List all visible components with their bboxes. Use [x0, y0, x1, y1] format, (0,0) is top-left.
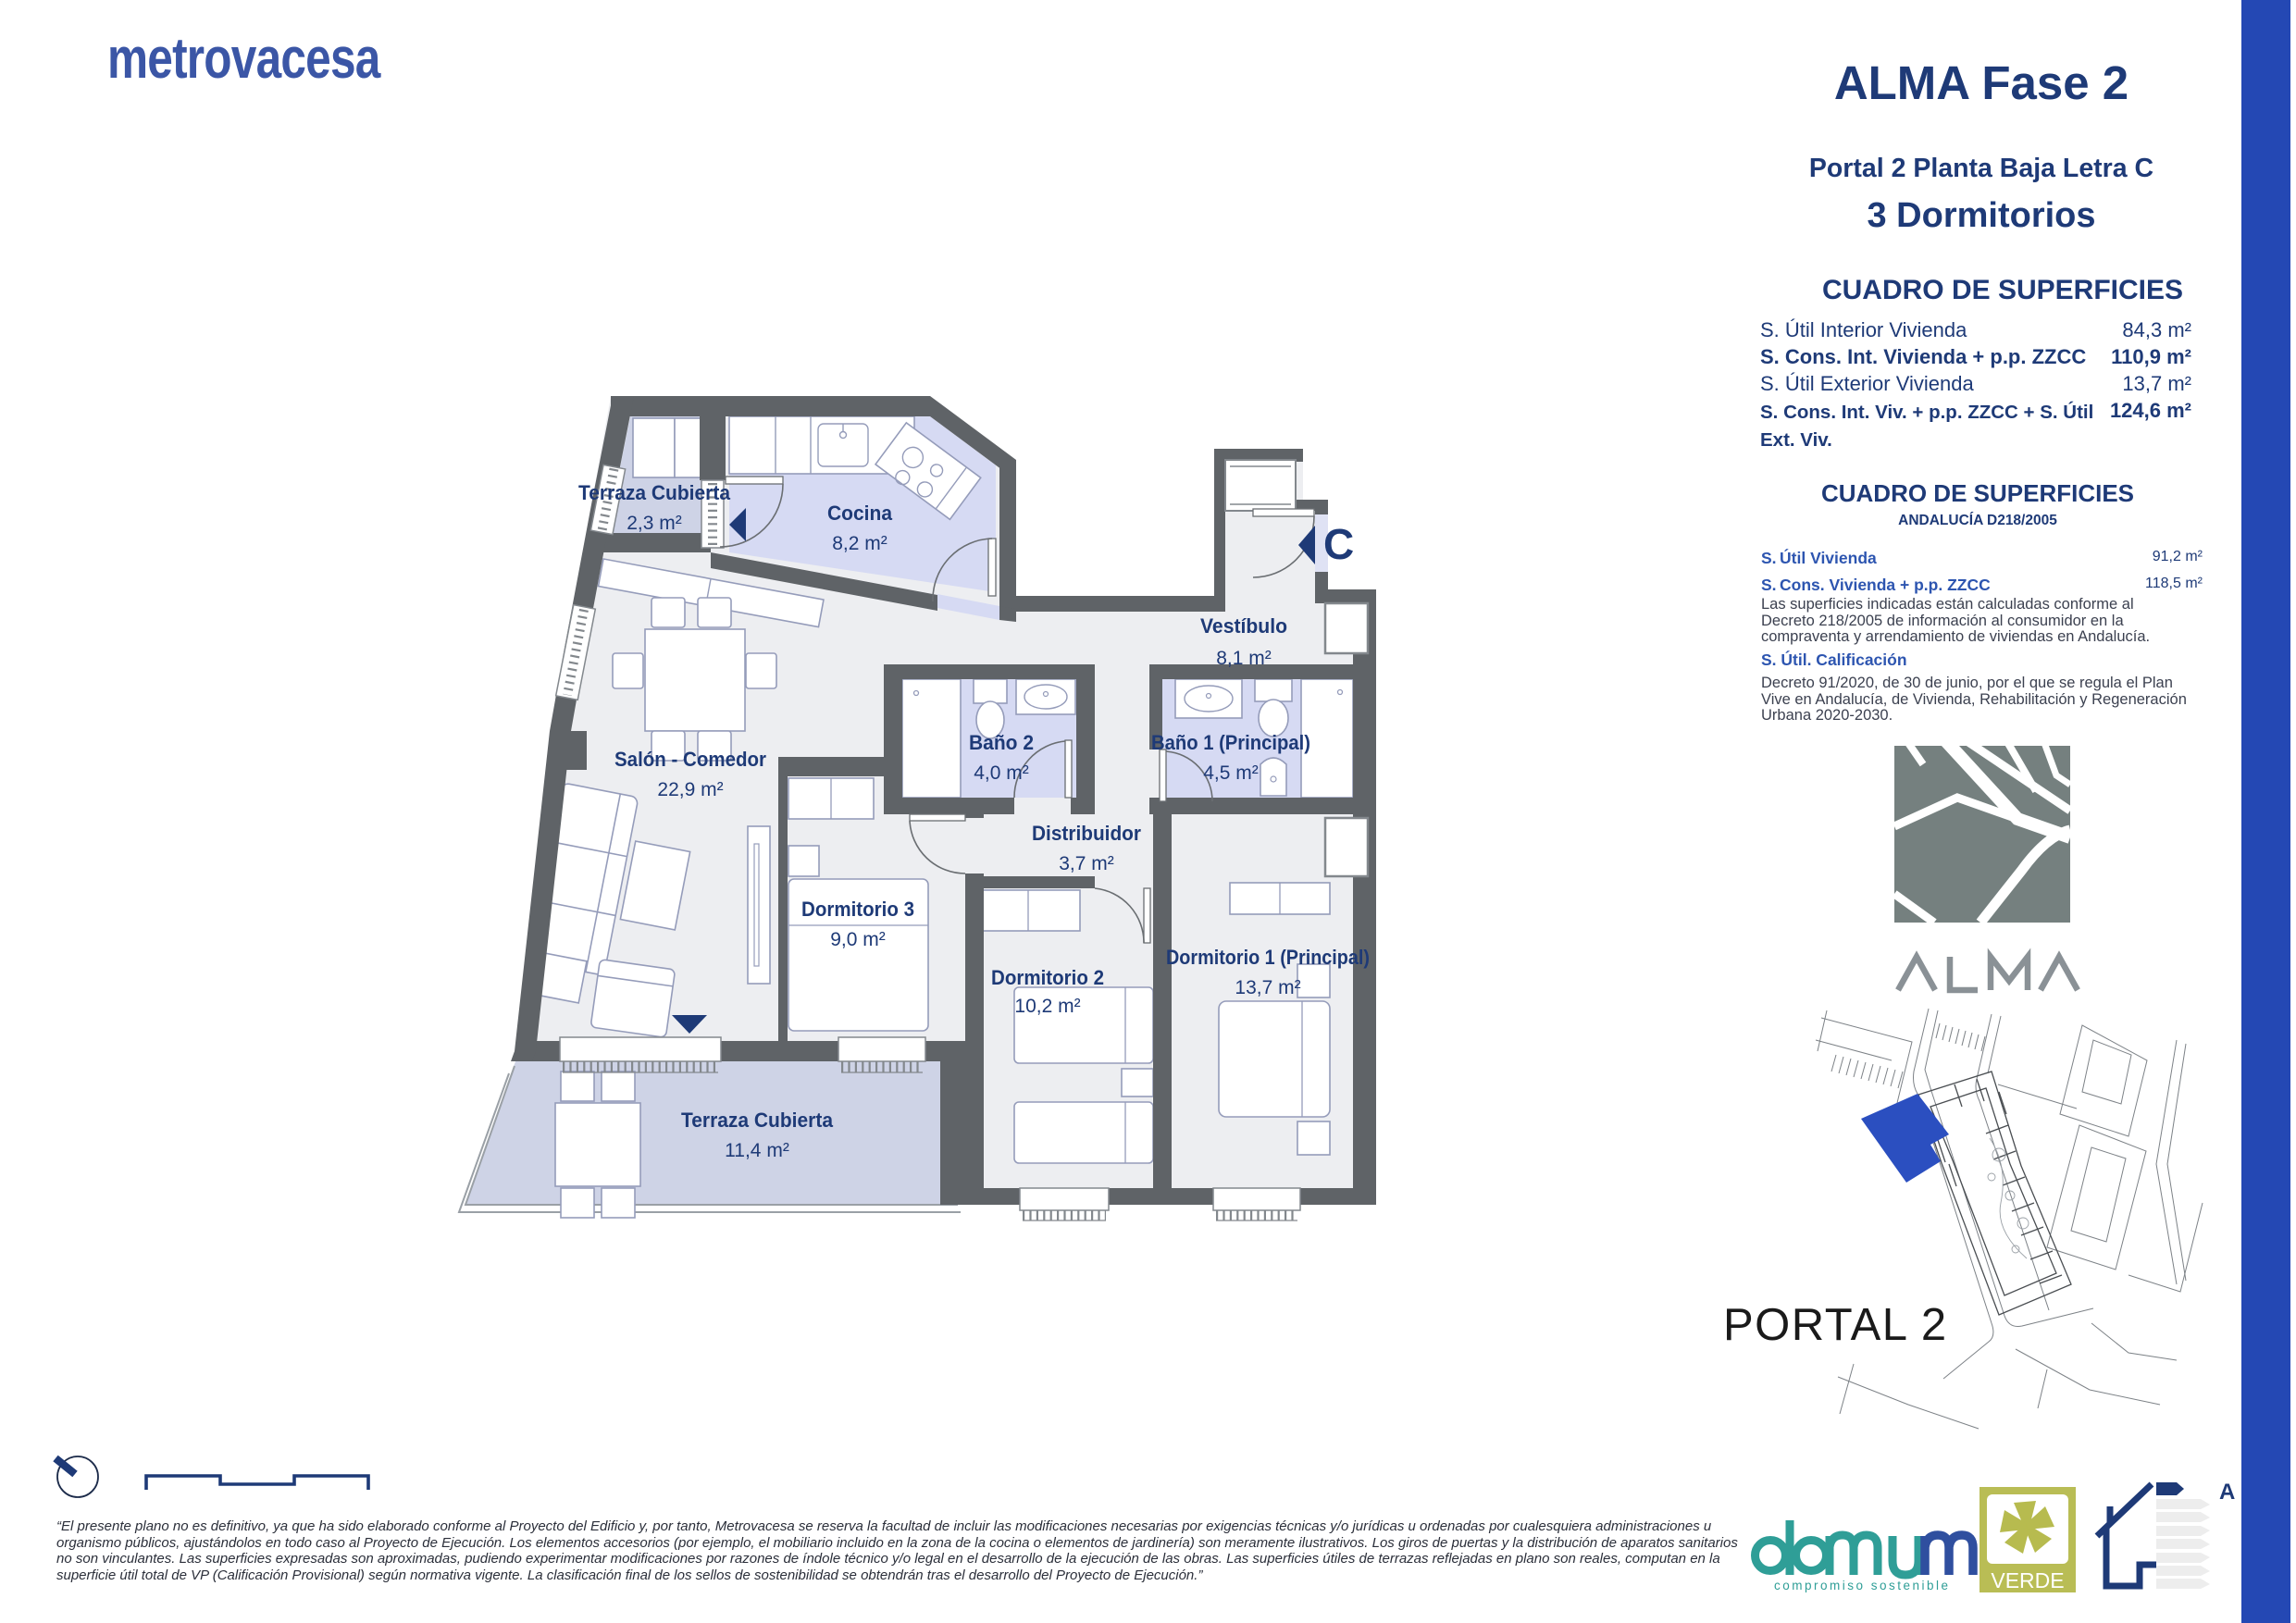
svg-text:4,5 m²: 4,5 m² [1203, 762, 1259, 784]
svg-text:Baño 2: Baño 2 [969, 731, 1034, 754]
svg-text:8,1 m²: 8,1 m² [1216, 648, 1272, 669]
svg-text:PORTAL 2: PORTAL 2 [1723, 1300, 1948, 1350]
svg-text:Terraza Cubierta: Terraza Cubierta [681, 1109, 834, 1132]
svg-text:13,7 m²: 13,7 m² [1235, 977, 1300, 998]
svg-text:3,7 m²: 3,7 m² [1059, 853, 1114, 874]
svg-text:Dormitorio 3: Dormitorio 3 [801, 898, 914, 921]
svg-text:Distribuidor: Distribuidor [1032, 822, 1141, 845]
svg-text:Salón - Comedor: Salón - Comedor [614, 748, 766, 771]
svg-text:A: A [2219, 1480, 2235, 1505]
svg-text:Dormitorio 1 (Principal): Dormitorio 1 (Principal) [1166, 946, 1370, 969]
svg-text:C: C [1323, 520, 1354, 568]
svg-text:Vestíbulo: Vestíbulo [1200, 614, 1287, 638]
svg-text:2,3 m²: 2,3 m² [627, 513, 682, 534]
svg-text:9,0 m²: 9,0 m² [830, 929, 886, 950]
svg-text:Terraza Cubierta: Terraza Cubierta [578, 481, 731, 504]
svg-text:10,2 m²: 10,2 m² [1014, 996, 1080, 1017]
svg-text:22,9 m²: 22,9 m² [657, 779, 723, 800]
svg-text:Cocina: Cocina [827, 502, 893, 525]
svg-text:Baño 1 (Principal): Baño 1 (Principal) [1151, 731, 1310, 754]
svg-text:4,0 m²: 4,0 m² [974, 762, 1029, 784]
svg-text:VERDE: VERDE [1991, 1568, 2064, 1592]
svg-text:Dormitorio 2: Dormitorio 2 [991, 966, 1104, 989]
svg-text:11,4 m²: 11,4 m² [725, 1140, 789, 1161]
svg-text:8,2 m²: 8,2 m² [832, 533, 887, 554]
